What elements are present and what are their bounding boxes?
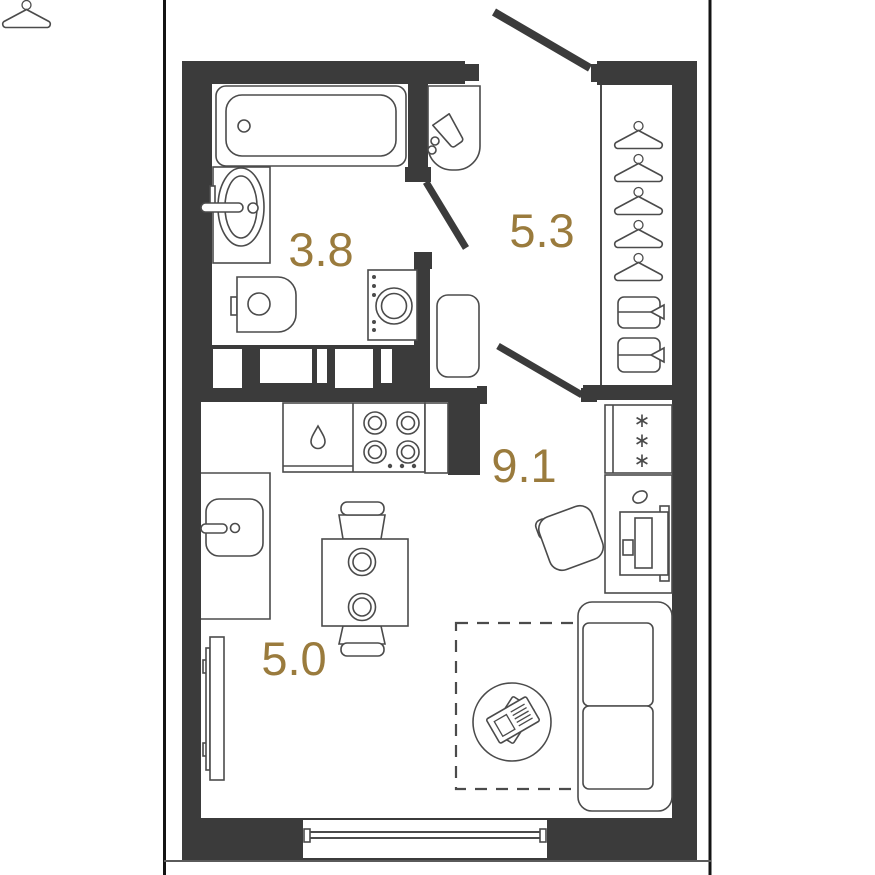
dining-table-icon (322, 539, 408, 626)
hanger-icon (3, 1, 51, 28)
area-label-hallway: 5.3 (509, 204, 574, 257)
floor-plan: 3.8 5.3 (0, 0, 875, 875)
shoe-cabinet-icon (437, 295, 479, 377)
shaft-band (182, 345, 427, 390)
vanity-sink-icon (428, 86, 480, 170)
floor-plan-canvas: 3.8 5.3 (0, 0, 875, 875)
drawer-icon (618, 297, 664, 328)
chair-icon (339, 626, 385, 656)
area-label-bathroom: 3.8 (288, 223, 353, 276)
tv-icon (203, 637, 224, 780)
bathtub-icon (216, 86, 406, 166)
kitchen-sink-icon (201, 499, 263, 556)
monitor-icon (620, 506, 669, 581)
area-label-kitchen-living: 9.1 (491, 439, 556, 492)
desk-icon (605, 475, 672, 593)
toilet-icon (231, 277, 296, 332)
office-chair-icon (534, 502, 607, 574)
fridge-icon: ∗ ∗ ∗ (605, 405, 672, 473)
drawer-icon (618, 338, 664, 372)
entry-door-leaf-icon (494, 12, 590, 68)
coffee-table-icon (473, 683, 551, 761)
sofa-icon (578, 602, 672, 811)
window-icon (303, 820, 547, 858)
area-label-living-zone: 5.0 (261, 632, 326, 685)
chair-icon (339, 502, 385, 539)
freezer-asterisk: ∗ (634, 448, 651, 472)
bathroom-door-leaf-icon (426, 182, 466, 248)
washing-machine-icon (368, 270, 417, 340)
room-door-leaf-icon (498, 346, 582, 395)
